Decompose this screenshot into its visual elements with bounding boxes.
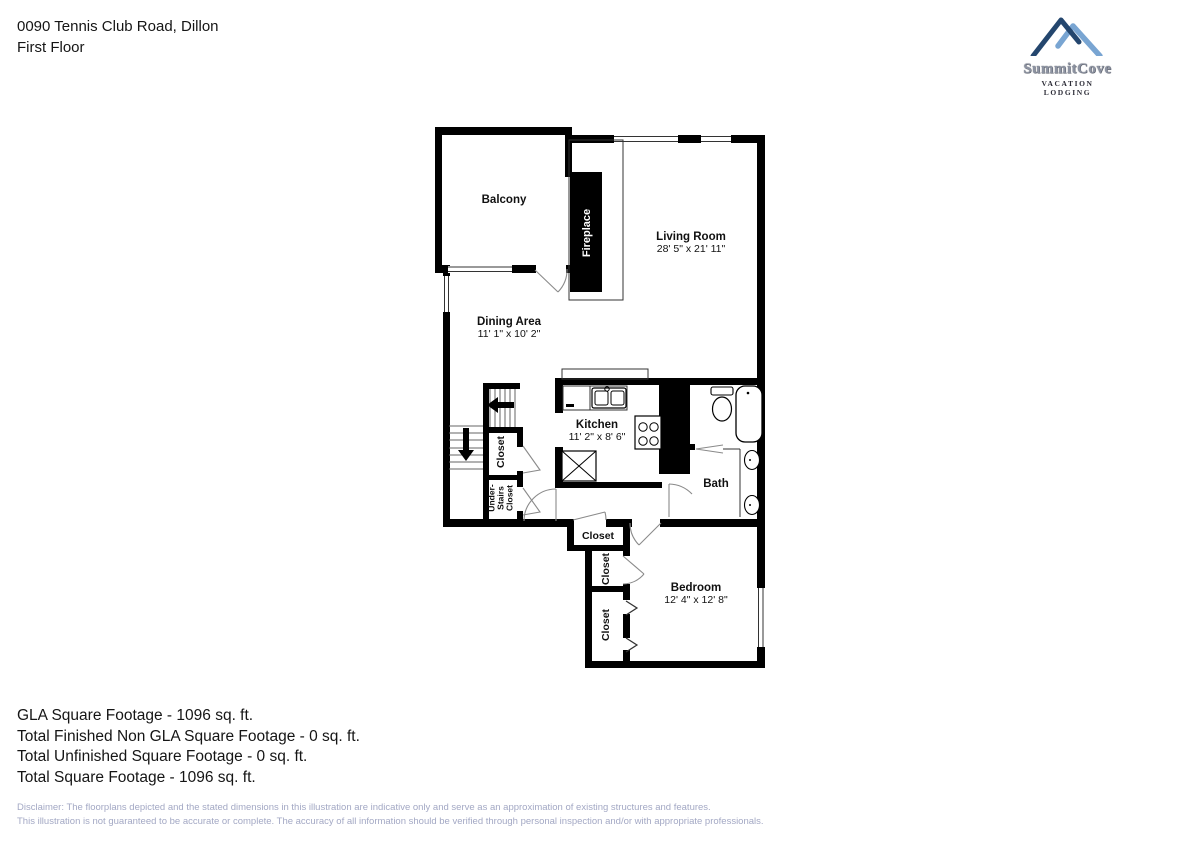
toilet-tank: [711, 387, 733, 395]
unfinished-square-footage: Total Unfinished Square Footage - 0 sq. …: [17, 748, 307, 766]
balcony-door: [558, 269, 567, 292]
disclaimer-line-1: Disclaimer: The floorplans depicted and …: [17, 802, 711, 813]
gla-square-footage: GLA Square Footage - 1096 sq. ft.: [17, 707, 253, 725]
bedroom-closet-small-label: Closet: [600, 553, 612, 585]
stairs-closet-label: Closet: [495, 436, 507, 468]
total-square-footage: Total Square Footage - 1096 sq. ft.: [17, 769, 256, 787]
hall-door: [524, 489, 556, 521]
toilet-room-door: [696, 445, 723, 453]
non-gla-square-footage: Total Finished Non GLA Square Footage - …: [17, 728, 360, 746]
bifold-door-2: [626, 638, 637, 652]
under-stairs-closet-label: Under- Stairs Closet: [488, 484, 515, 511]
hall-closet-door: [605, 512, 606, 520]
living-room-label: Living Room 28' 5" x 21' 11": [656, 231, 726, 255]
fireplace-label: Fireplace: [581, 209, 593, 257]
balcony-label: Balcony: [482, 194, 527, 206]
bedroom-closet-large-label: Closet: [600, 609, 612, 641]
hall-closet-label: Closet: [582, 530, 614, 542]
vanity-sink-1: [745, 451, 760, 470]
bedroom-closet-door: [623, 574, 644, 584]
kitchen-bar-counter: [562, 369, 648, 379]
floorplan-page: 0090 Tennis Club Road, Dillon First Floo…: [0, 0, 1200, 849]
bathtub: [736, 386, 762, 442]
bifold-door-1: [626, 601, 637, 615]
toilet: [713, 397, 732, 421]
vanity-sink-2: [745, 496, 760, 515]
disclaimer-line-2: This illustration is not guaranteed to b…: [17, 816, 764, 827]
bath-label: Bath: [703, 478, 729, 490]
kitchen-label: Kitchen 11' 2" x 8' 6": [569, 419, 626, 443]
bath-fixtures: [711, 386, 765, 515]
stairs-closet-door: [523, 446, 540, 473]
bath-door: [669, 484, 692, 494]
bedroom-label: Bedroom 12' 4" x 12' 8": [664, 582, 727, 606]
dining-area-label: Dining Area 11' 1" x 10' 2": [477, 316, 541, 340]
